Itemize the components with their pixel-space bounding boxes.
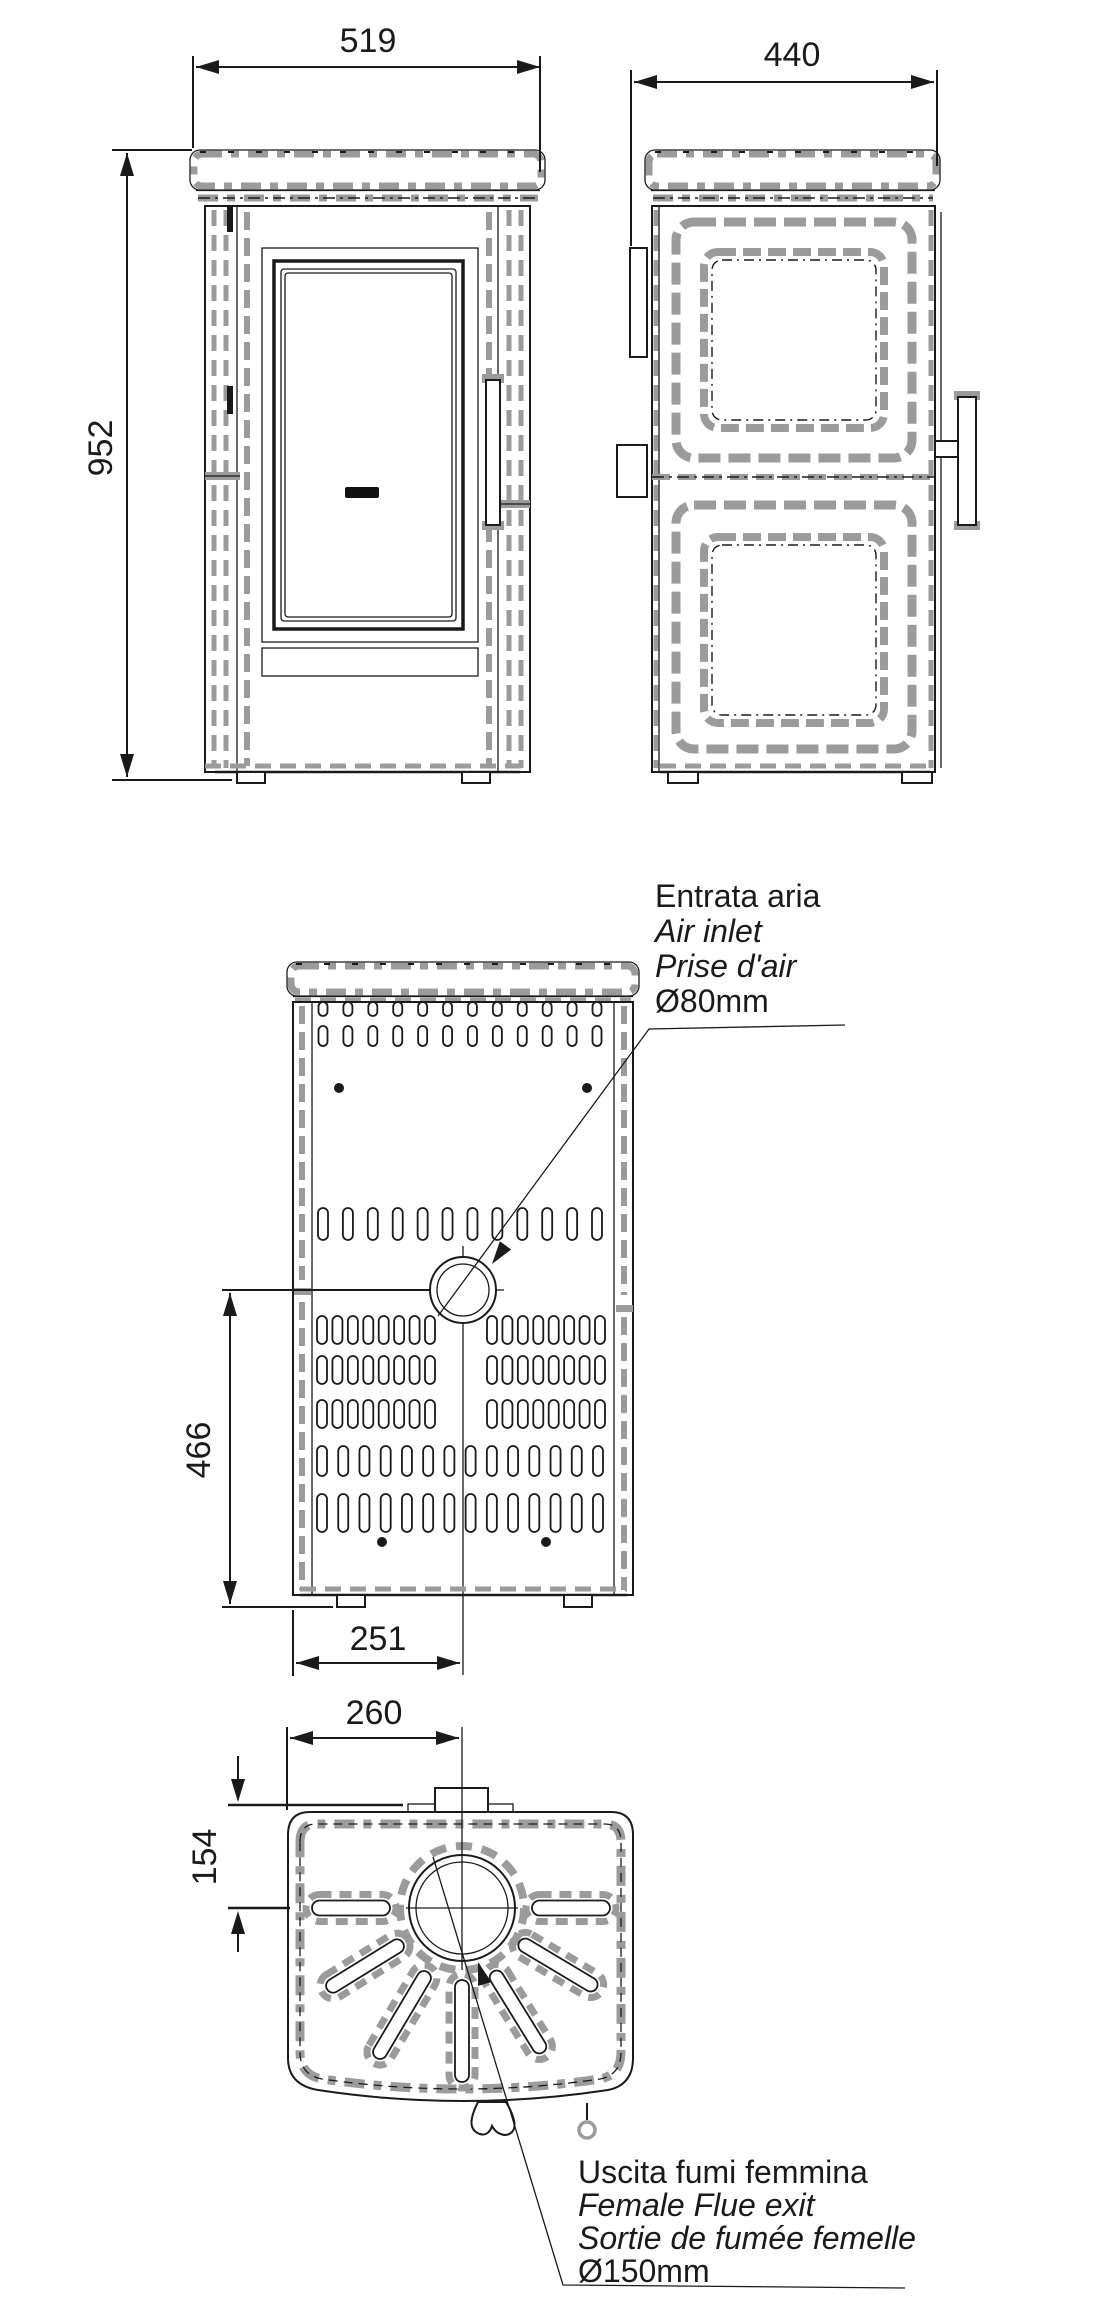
dim-label-air-inlet-height: 466 (180, 1422, 218, 1479)
rear-view (287, 962, 639, 1675)
brand-logo (345, 487, 379, 498)
foot (462, 772, 490, 783)
air-inlet-diameter: Ø80mm (655, 983, 769, 1019)
dim-label-front-height: 952 (82, 420, 120, 477)
flue-label-fr: Sortie de fumée femelle (578, 2220, 916, 2256)
dim-label-front-width: 519 (340, 22, 397, 60)
top-door-handle (472, 2102, 515, 2135)
foot (237, 772, 265, 783)
top-view (288, 1788, 633, 2138)
ash-drawer (262, 648, 478, 676)
dim-label-flue-offset-y: 154 (186, 1829, 224, 1886)
foot (668, 772, 698, 783)
dim-front-height: 952 (82, 150, 232, 780)
foot (337, 1595, 365, 1607)
door-handle-front (482, 374, 504, 530)
dim-label-flue-offset-x: 260 (346, 1694, 403, 1732)
dim-flue-offset-y: 154 (186, 1756, 403, 1952)
air-inlet-label-fr: Prise d'air (655, 948, 798, 984)
door-window (262, 248, 478, 642)
drawing-page: 519 952 (0, 0, 1100, 2300)
air-inlet-label-it: Entrata aria (655, 878, 821, 914)
rear-connector (630, 248, 647, 357)
knob-ring (579, 2122, 595, 2138)
side-handle (935, 391, 980, 530)
foot (564, 1595, 592, 1607)
flue-label-en: Female Flue exit (578, 2187, 816, 2223)
dim-label-air-inlet-offset: 251 (350, 1620, 407, 1658)
air-inlet-leader (438, 1025, 845, 1316)
dim-side-depth: 440 (631, 36, 937, 246)
side-view (617, 150, 980, 783)
dimension-arrowheads (120, 60, 934, 1986)
dim-label-side-depth: 440 (764, 36, 821, 74)
flue-label-it: Uscita fumi femmina (578, 2154, 868, 2190)
hinge-mark (227, 386, 233, 414)
foot (902, 772, 932, 783)
air-inlet-label-en: Air inlet (653, 913, 763, 949)
stove-dimension-drawing: 519 952 (0, 0, 1100, 2300)
rear-connector (617, 445, 647, 497)
flue-diameter: Ø150mm (578, 2253, 710, 2289)
front-view (190, 150, 545, 783)
hinge-mark (227, 206, 233, 232)
